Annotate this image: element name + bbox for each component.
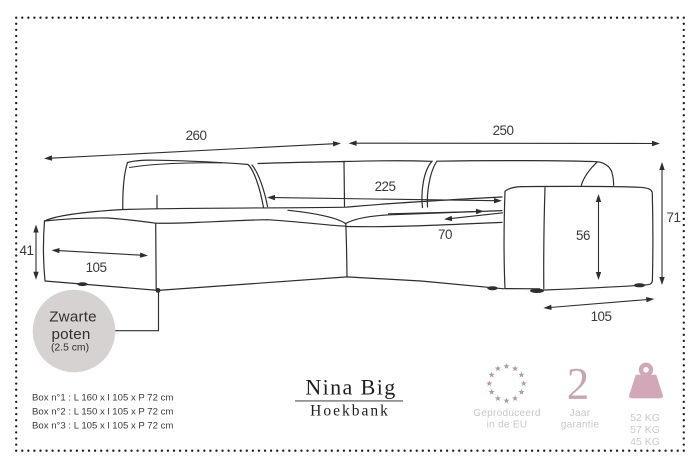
svg-text:Box n°2 : L 150 x l 105 x P 72: Box n°2 : L 150 x l 105 x P 72 cm	[32, 407, 173, 418]
svg-text:225: 225	[375, 179, 396, 194]
svg-text:Nina Big: Nina Big	[305, 375, 396, 400]
svg-text:Box n°3 : L 105 x l 105 x P 72: Box n°3 : L 105 x l 105 x P 72 cm	[32, 421, 173, 432]
svg-text:poten: poten	[51, 326, 90, 343]
svg-text:Box n°1 : L 160 x l 105 x P 72: Box n°1 : L 160 x l 105 x P 72 cm	[32, 393, 173, 404]
svg-text:260: 260	[186, 128, 207, 143]
svg-text:Zwarte: Zwarte	[49, 309, 97, 326]
svg-text:in de EU: in de EU	[487, 420, 528, 431]
svg-text:45 KG: 45 KG	[630, 436, 660, 448]
svg-text:Geproduceerd: Geproduceerd	[473, 408, 541, 419]
svg-text:71: 71	[667, 210, 681, 225]
svg-text:105: 105	[591, 309, 612, 324]
svg-text:Jaar: Jaar	[570, 408, 591, 419]
svg-text:52 KG: 52 KG	[630, 412, 660, 424]
svg-text:56: 56	[576, 228, 590, 243]
svg-text:70: 70	[438, 227, 452, 242]
svg-text:250: 250	[493, 123, 514, 138]
svg-text:garantie: garantie	[561, 420, 600, 431]
svg-text:57 KG: 57 KG	[630, 424, 660, 436]
svg-text:105: 105	[86, 260, 107, 275]
svg-text:2: 2	[567, 359, 590, 409]
svg-text:(2.5 cm): (2.5 cm)	[51, 343, 89, 354]
svg-text:41: 41	[20, 243, 34, 258]
svg-text:Hoekbank: Hoekbank	[310, 403, 390, 420]
